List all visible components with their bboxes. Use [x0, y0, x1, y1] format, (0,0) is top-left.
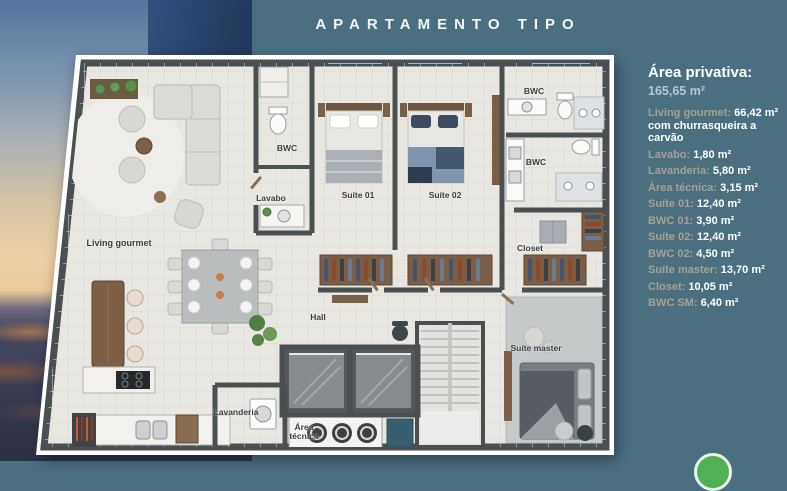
- legend-item-note: com churrasqueira a carvão: [648, 120, 787, 145]
- toilet: [572, 140, 590, 154]
- pillow: [438, 115, 458, 128]
- legend-item: Área técnica: 3,15 m²: [648, 182, 787, 195]
- console-table: [332, 295, 368, 303]
- armchair: [119, 106, 145, 132]
- pillow: [411, 115, 431, 128]
- toilet: [592, 139, 599, 155]
- legend-item-label: BWC 02:: [648, 248, 693, 260]
- legend-item-label: Área técnica:: [648, 182, 717, 194]
- stool: [127, 318, 143, 334]
- shower-head-icon: [586, 182, 594, 190]
- legend-item-label: BWC SM:: [648, 297, 698, 309]
- nightstand: [383, 103, 390, 117]
- legend-items: Living gourmet: 66,42 m² com churrasquei…: [648, 107, 787, 310]
- cabinet: [176, 415, 198, 443]
- legend-item: BWC 01: 3,90 m²: [648, 215, 787, 228]
- legend-item-value: 12,40 m²: [697, 198, 741, 210]
- background-building: [148, 0, 252, 57]
- pouf: [555, 422, 573, 440]
- legend-item-value: 3,15 m²: [720, 182, 758, 194]
- toilet: [269, 107, 287, 114]
- cooktop: [116, 371, 150, 389]
- plant-icon: [125, 80, 137, 92]
- bed-headboard: [408, 103, 464, 111]
- blanket: [326, 150, 382, 183]
- legend-item-value: 5,80 m²: [713, 165, 751, 177]
- legend-item-value: 1,80 m²: [693, 149, 731, 161]
- washbasin: [522, 102, 532, 112]
- stool: [127, 290, 143, 306]
- legend-total: 165,65 m²: [648, 84, 787, 98]
- suite-master-furniture: [504, 297, 602, 443]
- stool: [127, 346, 143, 362]
- side-table: [154, 191, 166, 203]
- pillow: [330, 115, 350, 128]
- shower-head-icon: [564, 182, 572, 190]
- area-legend: Área privativa: 165,65 m² Living gourmet…: [648, 64, 787, 314]
- legend-item: Living gourmet: 66,42 m² com churrasquei…: [648, 107, 787, 145]
- toilet: [557, 93, 573, 100]
- floor-plan-svg: [36, 55, 628, 459]
- armchair: [524, 327, 544, 347]
- legend-title: Área privativa:: [648, 64, 787, 81]
- armchair: [119, 157, 145, 183]
- technical-area: [289, 417, 413, 449]
- legend-item: BWC SM: 6,40 m²: [648, 297, 787, 310]
- tv-panel: [504, 351, 512, 421]
- shower-head-icon: [592, 109, 600, 117]
- legend-item-label: Closet:: [648, 281, 685, 293]
- legend-item: Closet: 10,05 m²: [648, 281, 787, 294]
- legend-item-value: 10,05 m²: [688, 281, 732, 293]
- bed-headboard: [326, 103, 382, 111]
- pillow: [358, 115, 378, 128]
- legend-item-label: Suíte master:: [648, 264, 718, 276]
- ottoman: [543, 341, 555, 353]
- legend-item-value: 4,50 m²: [696, 248, 734, 260]
- pouf: [577, 425, 593, 441]
- plant-icon: [263, 327, 277, 341]
- office-chair: [392, 325, 408, 341]
- legend-item: BWC 02: 4,50 m²: [648, 248, 787, 261]
- plant-icon: [249, 315, 265, 331]
- legend-item-label: Lavanderia:: [648, 165, 710, 177]
- legend-item-label: Living gourmet:: [648, 107, 731, 119]
- legend-item-value: 13,70 m²: [721, 264, 765, 276]
- nightstand: [465, 103, 472, 117]
- legend-item: Lavanderia: 5,80 m²: [648, 165, 787, 178]
- plant-icon: [110, 82, 120, 92]
- laundry: [250, 399, 276, 429]
- legend-item: Suíte 01: 12,40 m²: [648, 198, 787, 211]
- legend-item: Suíte master: 13,70 m²: [648, 264, 787, 277]
- toilet: [270, 114, 286, 134]
- legend-item-value: 3,90 m²: [696, 215, 734, 227]
- legend-item-label: Suíte 02:: [648, 231, 694, 243]
- legend-item-label: Suíte 01:: [648, 198, 694, 210]
- legend-item: Suíte 02: 12,40 m²: [648, 231, 787, 244]
- washbasin: [509, 147, 521, 159]
- shower-head-icon: [579, 109, 587, 117]
- stairs: [417, 323, 483, 447]
- coffee-table: [136, 138, 152, 154]
- pillow: [578, 369, 591, 399]
- page-title: APARTAMENTO TIPO: [252, 16, 644, 33]
- legend-item-value: 6,40 m²: [701, 297, 739, 309]
- floor-plan: Living gourmet BWC Lavabo Suíte 01 Suíte…: [36, 55, 628, 459]
- sofa: [154, 85, 192, 119]
- nightstand: [400, 103, 407, 117]
- nightstand: [318, 103, 325, 117]
- sink: [136, 421, 150, 439]
- legend-item-label: BWC 01:: [648, 215, 693, 227]
- sink: [153, 421, 167, 439]
- toilet: [558, 101, 572, 119]
- water-tank: [387, 419, 413, 447]
- washbasin: [509, 171, 521, 183]
- washbasin: [278, 210, 290, 222]
- closet-strip: [492, 95, 500, 185]
- plant-icon: [252, 334, 264, 346]
- legend-item: Lavabo: 1,80 m²: [648, 149, 787, 162]
- plant-icon: [263, 208, 271, 216]
- whatsapp-button[interactable]: [694, 453, 732, 491]
- plant-icon: [95, 84, 105, 94]
- legend-item-label: Lavabo:: [648, 149, 690, 161]
- legend-item-value: 12,40 m²: [697, 231, 741, 243]
- shower: [556, 173, 602, 201]
- legend-item-value: 66,42 m²: [734, 107, 778, 119]
